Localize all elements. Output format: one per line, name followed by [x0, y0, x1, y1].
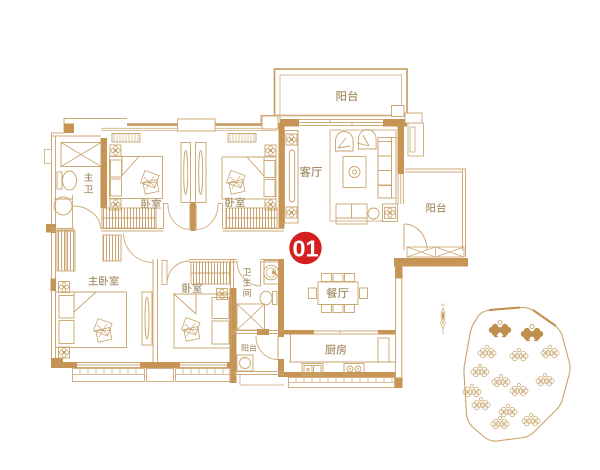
svg-text:S: S	[441, 330, 444, 335]
svg-text:N: N	[441, 303, 444, 308]
svg-text:01: 01	[293, 236, 319, 262]
